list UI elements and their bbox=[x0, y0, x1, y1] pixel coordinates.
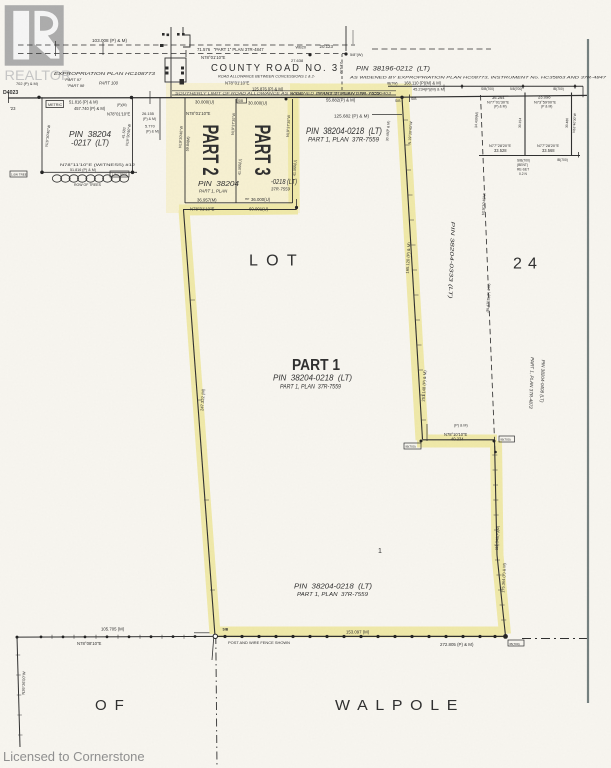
svg-text:Licensed to Cornerstone: Licensed to Cornerstone bbox=[3, 749, 145, 764]
